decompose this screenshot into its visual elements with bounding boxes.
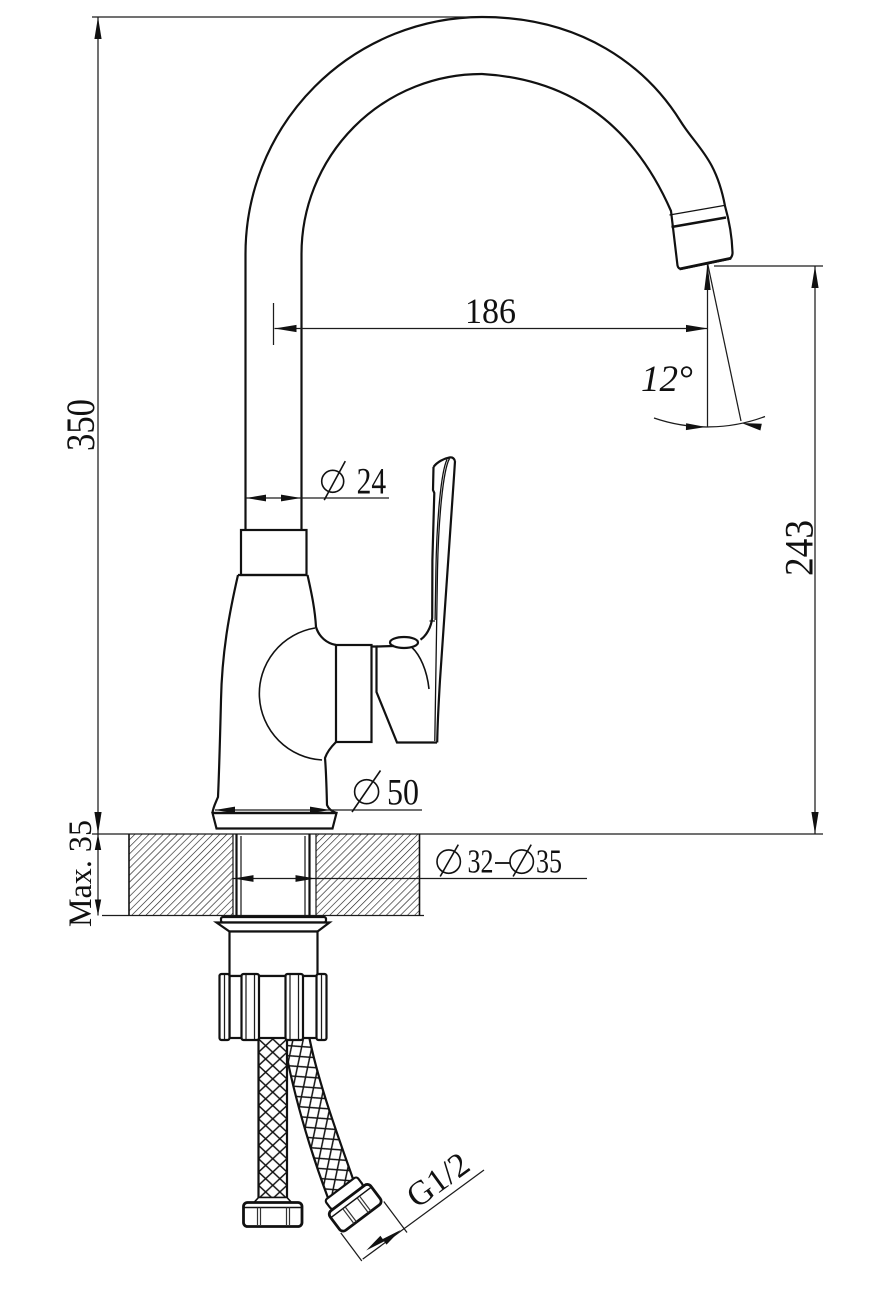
svg-text:32: 32 xyxy=(468,844,494,881)
svg-text:350: 350 xyxy=(58,399,103,451)
svg-text:243: 243 xyxy=(777,520,822,576)
svg-text:24: 24 xyxy=(357,462,387,503)
svg-text:12°: 12° xyxy=(641,359,693,400)
svg-text:50: 50 xyxy=(387,773,419,814)
svg-text:186: 186 xyxy=(465,291,516,331)
svg-text:35: 35 xyxy=(536,844,562,881)
svg-text:Max. 35: Max. 35 xyxy=(63,820,99,927)
